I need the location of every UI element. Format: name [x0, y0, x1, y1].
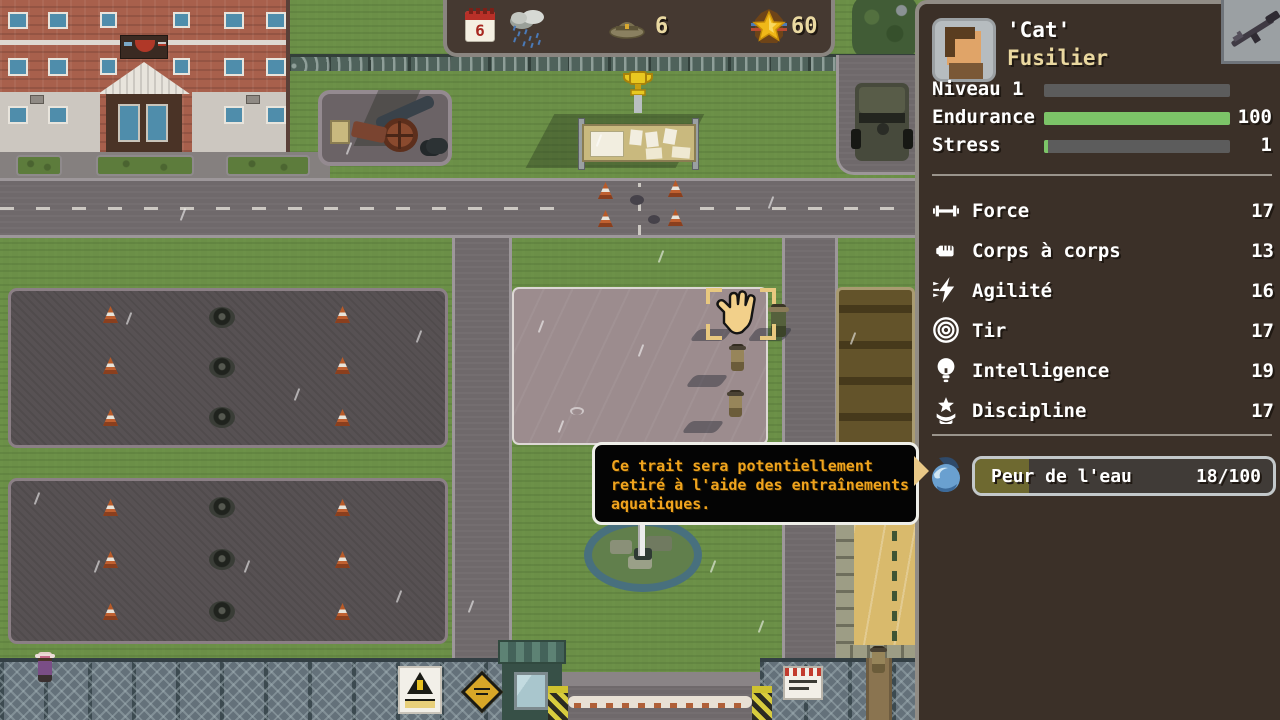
attribute-row-force: Force 17 — [919, 192, 1280, 232]
character-name: 'Cat' — [1007, 18, 1070, 42]
road-vertical-left — [452, 238, 512, 688]
weapon-slot[interactable] — [1221, 0, 1280, 64]
stat-value: 100 — [1238, 106, 1272, 128]
trophy-icon — [618, 70, 658, 118]
fist-icon — [930, 238, 962, 264]
attribute-row-shooting: Tir 17 — [919, 312, 1280, 352]
caution-diamond-sign — [462, 672, 502, 712]
trees — [852, 0, 918, 60]
game-screen: 6 6 — [0, 0, 1280, 720]
warning-sign — [398, 666, 442, 714]
character-panel: 'Cat' Fusilier Niveau 1 Endurance 100 St… — [915, 0, 1280, 720]
calendar-day: 6 — [465, 21, 495, 40]
character-role: Fusilier — [1007, 46, 1108, 70]
stat-value: 1 — [1261, 134, 1272, 156]
stat-label: Niveau 1 — [932, 78, 1024, 100]
notice-board[interactable] — [540, 62, 710, 172]
medal-count: 60 — [791, 14, 818, 39]
cannon-display[interactable] — [318, 90, 452, 166]
tooltip-line: Ce trait sera potentiellement — [611, 457, 902, 476]
divider — [932, 434, 1272, 436]
attribute-row-intelligence: Intelligence 19 — [919, 352, 1280, 392]
attribute-row-melee: Corps à corps 13 — [919, 232, 1280, 272]
lightbulb-icon — [930, 356, 962, 384]
trait-tooltip: Ce trait sera potentiellement retiré à l… — [592, 442, 919, 525]
star-chevrons-icon — [930, 396, 962, 424]
top-status-bar: 6 6 — [443, 0, 835, 57]
star-medal-icon — [749, 8, 789, 48]
recruit-count: 6 — [655, 14, 668, 39]
endurance-bar — [1044, 112, 1230, 125]
rain-cloud-icon — [505, 8, 549, 48]
building-sign — [120, 35, 168, 59]
attribute-row-discipline: Discipline 17 — [919, 392, 1280, 432]
hedge — [16, 155, 62, 176]
campaign-hat-icon — [607, 12, 647, 40]
booth-window — [514, 672, 548, 710]
gate-barrier[interactable] — [548, 684, 772, 720]
tooltip-line: retiré à l'aide des entraînements — [611, 476, 902, 495]
soldier[interactable] — [729, 390, 742, 417]
hand-cursor — [712, 290, 762, 336]
vent — [30, 95, 44, 104]
divider — [932, 174, 1272, 176]
obstacle-course-2[interactable] — [8, 478, 448, 644]
target-icon — [930, 316, 962, 344]
endurance-bar-fill — [1044, 112, 1230, 125]
sand-field[interactable] — [836, 523, 915, 658]
trait-pill[interactable]: Peur de l'eau 18/100 — [972, 456, 1276, 496]
trait-value: 18/100 — [1196, 466, 1261, 487]
hedge — [226, 155, 310, 176]
civilian-woman[interactable] — [38, 652, 52, 682]
trait-label: Peur de l'eau — [991, 466, 1132, 487]
level-bar — [1044, 84, 1230, 97]
entrance-door[interactable] — [106, 94, 182, 152]
tooltip-line: aquatiques. — [611, 495, 902, 514]
rifle-icon — [1224, 0, 1280, 60]
calendar-icon: 6 — [465, 8, 495, 42]
stress-bar — [1044, 140, 1230, 153]
headquarters-building[interactable] — [0, 0, 290, 152]
water-wave-icon — [925, 452, 969, 496]
soldier-walking[interactable] — [872, 646, 885, 673]
barrier-arm — [568, 696, 752, 708]
dumbbell-icon — [930, 198, 962, 224]
lightning-icon — [930, 276, 962, 304]
stress-bar-fill — [1044, 140, 1048, 153]
hedge — [96, 155, 194, 176]
soldier[interactable] — [731, 344, 744, 371]
stat-label: Endurance — [932, 106, 1035, 128]
stat-label: Stress — [932, 134, 1001, 156]
attribute-row-agility: Agilité 16 — [919, 272, 1280, 312]
gate-info-sign — [783, 666, 823, 700]
obstacle-course-1[interactable] — [8, 288, 448, 448]
cannon-plaque — [330, 120, 350, 144]
tooltip-arrow — [914, 456, 929, 486]
vent — [246, 95, 260, 104]
jeep[interactable] — [851, 83, 913, 161]
road-horizontal — [0, 178, 915, 238]
avatar[interactable] — [932, 18, 996, 82]
flag-monument[interactable] — [584, 518, 702, 592]
